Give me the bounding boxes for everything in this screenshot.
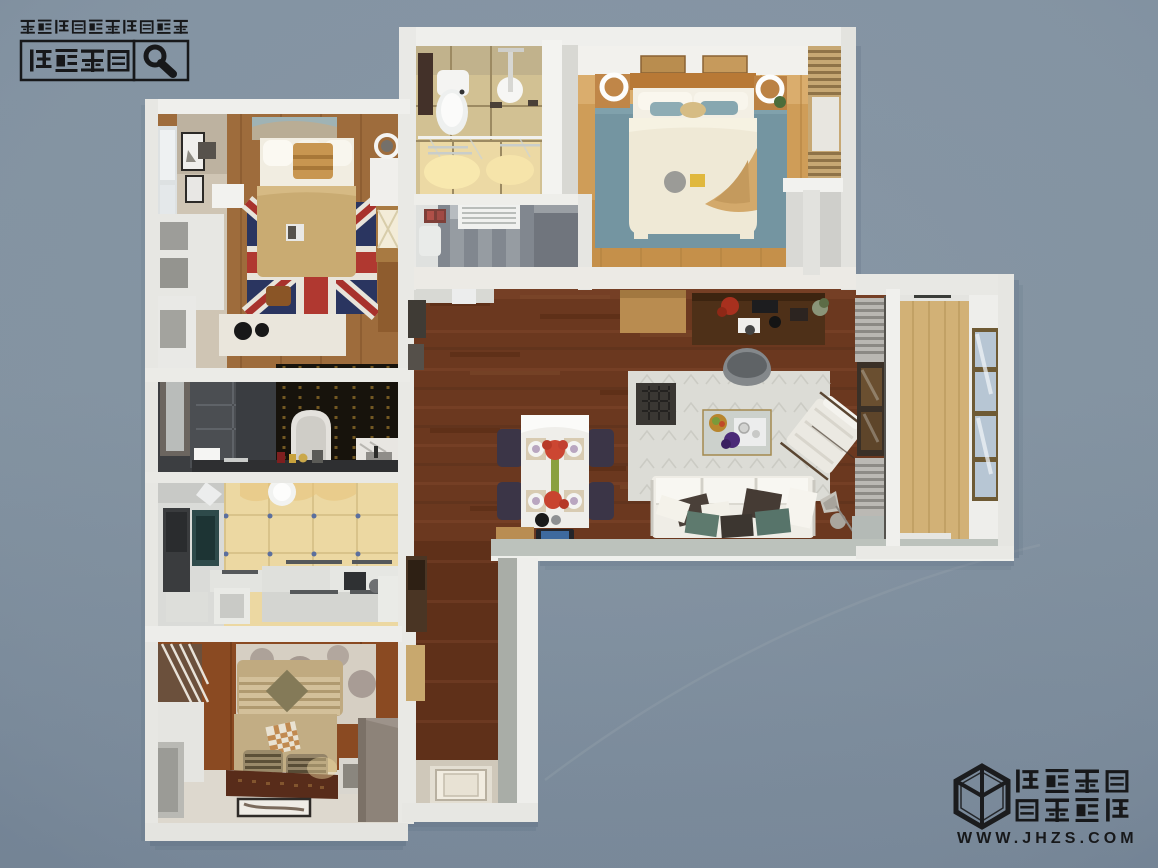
svg-text:WWW.JHZS.COM: WWW.JHZS.COM	[957, 830, 1138, 847]
